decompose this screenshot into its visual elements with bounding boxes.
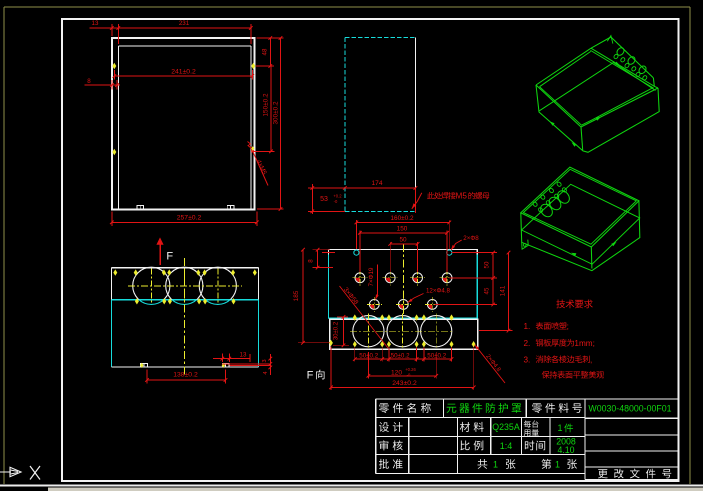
svg-text:3×Φ58: 3×Φ58 bbox=[342, 286, 360, 306]
svg-text:3.: 3. bbox=[524, 355, 531, 364]
svg-text:138±0.2: 138±0.2 bbox=[173, 371, 198, 378]
svg-text:150: 150 bbox=[397, 225, 408, 232]
svg-text:50±0.2: 50±0.2 bbox=[391, 352, 410, 359]
svg-text:M5: M5 bbox=[456, 192, 468, 201]
svg-text:120: 120 bbox=[391, 369, 402, 376]
svg-text:185: 185 bbox=[293, 290, 300, 301]
svg-text:174: 174 bbox=[371, 180, 382, 187]
svg-text:48: 48 bbox=[262, 48, 269, 55]
svg-text:3: 3 bbox=[262, 359, 268, 362]
svg-text:1: 1 bbox=[555, 460, 560, 470]
svg-text:2.: 2. bbox=[524, 339, 531, 348]
svg-text:300±0.2: 300±0.2 bbox=[272, 101, 279, 124]
svg-text:2×Φ8: 2×Φ8 bbox=[463, 235, 479, 242]
svg-text:-0: -0 bbox=[334, 199, 338, 204]
svg-text:Q235A: Q235A bbox=[492, 422, 520, 432]
svg-text:50±0.2: 50±0.2 bbox=[359, 352, 378, 359]
svg-text:257±0.2: 257±0.2 bbox=[177, 215, 202, 222]
svg-text:7×Φ19: 7×Φ19 bbox=[368, 267, 375, 286]
svg-text:50: 50 bbox=[399, 236, 407, 243]
svg-text:53: 53 bbox=[320, 196, 328, 203]
svg-text:,: , bbox=[590, 355, 592, 364]
svg-text:W0030-48000-00F01: W0030-48000-00F01 bbox=[588, 404, 671, 414]
svg-text:1: 1 bbox=[557, 423, 562, 433]
svg-text:150±0.2: 150±0.2 bbox=[263, 93, 270, 116]
svg-text:1: 1 bbox=[493, 460, 498, 470]
svg-text:F: F bbox=[307, 370, 314, 382]
svg-text:;: ; bbox=[567, 322, 569, 331]
svg-text:-0: -0 bbox=[407, 373, 411, 378]
svg-text:8: 8 bbox=[307, 259, 314, 263]
svg-text:1:4: 1:4 bbox=[500, 441, 513, 451]
svg-text:241±0.2: 241±0.2 bbox=[171, 68, 196, 75]
svg-text:231: 231 bbox=[179, 20, 190, 27]
svg-text:+0.26: +0.26 bbox=[405, 367, 416, 372]
svg-text:F: F bbox=[166, 251, 173, 263]
svg-text:160±0.2: 160±0.2 bbox=[390, 215, 413, 222]
svg-text:45: 45 bbox=[484, 287, 491, 294]
svg-text:13: 13 bbox=[92, 20, 99, 27]
svg-text:4.10: 4.10 bbox=[557, 445, 574, 455]
svg-text:13: 13 bbox=[240, 352, 247, 359]
svg-text:1.: 1. bbox=[524, 322, 531, 331]
svg-text:4: 4 bbox=[263, 371, 269, 375]
svg-text:4×M5: 4×M5 bbox=[255, 159, 268, 177]
svg-text:2×Φ4.8: 2×Φ4.8 bbox=[484, 354, 501, 374]
svg-text:243±0.2: 243±0.2 bbox=[392, 380, 417, 387]
svg-text:12×Φ4.8: 12×Φ4.8 bbox=[426, 288, 451, 295]
svg-text:50: 50 bbox=[484, 261, 491, 268]
svg-text:+0.2: +0.2 bbox=[333, 194, 342, 199]
svg-text:50±0.2: 50±0.2 bbox=[427, 352, 446, 359]
svg-text:30±0.2: 30±0.2 bbox=[334, 321, 340, 340]
svg-text:141: 141 bbox=[500, 285, 507, 296]
svg-text:1mm;: 1mm; bbox=[574, 339, 594, 348]
svg-text:8: 8 bbox=[87, 78, 91, 85]
